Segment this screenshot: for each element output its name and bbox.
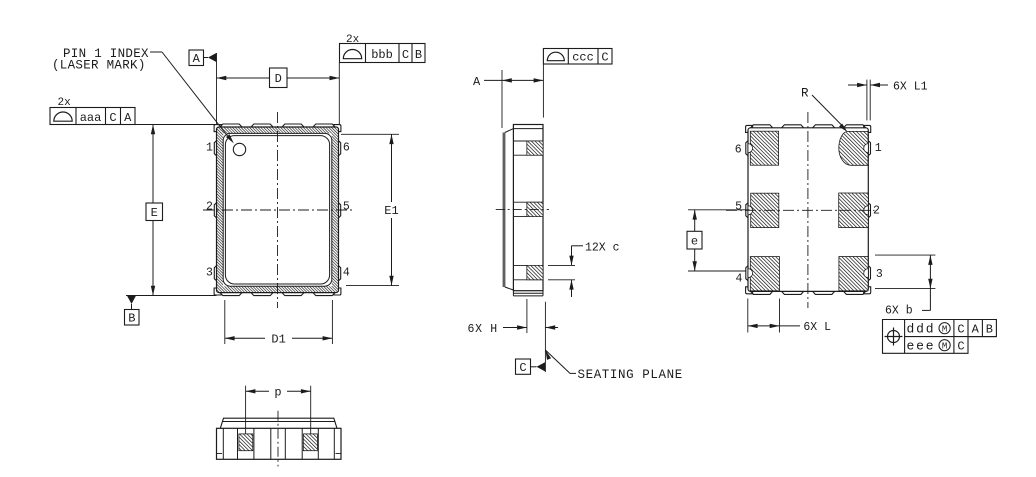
svg-text:2x: 2x	[346, 34, 360, 46]
svg-text:bbb: bbb	[371, 48, 393, 62]
svg-text:D1: D1	[271, 333, 285, 347]
svg-text:12X c: 12X c	[585, 241, 620, 254]
svg-text:5: 5	[343, 201, 350, 214]
svg-text:6: 6	[735, 144, 742, 157]
svg-text:A: A	[473, 75, 481, 89]
svg-text:2: 2	[206, 201, 213, 214]
svg-text:B: B	[415, 48, 422, 62]
svg-text:6X L1: 6X L1	[893, 81, 928, 94]
svg-text:6X L: 6X L	[803, 321, 831, 334]
svg-text:C: C	[957, 340, 964, 354]
svg-text:B: B	[986, 323, 993, 337]
svg-text:A: A	[193, 52, 201, 66]
svg-text:eee: eee	[907, 339, 936, 354]
svg-text:(LASER MARK): (LASER MARK)	[52, 59, 146, 73]
svg-text:p: p	[274, 386, 281, 400]
svg-text:ddd: ddd	[907, 322, 936, 337]
svg-text:6X b: 6X b	[885, 305, 913, 318]
svg-text:4: 4	[736, 272, 743, 285]
svg-text:M: M	[942, 325, 947, 335]
svg-text:SEATING PLANE: SEATING PLANE	[578, 368, 683, 382]
svg-text:6X H: 6X H	[468, 323, 498, 336]
svg-text:C: C	[402, 48, 409, 62]
svg-text:2: 2	[873, 205, 880, 218]
svg-text:3: 3	[206, 267, 213, 280]
svg-text:M: M	[942, 342, 947, 352]
svg-text:aaa: aaa	[80, 111, 102, 125]
svg-text:5: 5	[735, 200, 742, 213]
svg-text:E1: E1	[384, 204, 398, 218]
svg-text:C: C	[601, 51, 608, 65]
svg-text:3: 3	[876, 268, 883, 281]
svg-text:B: B	[128, 312, 135, 326]
svg-text:1: 1	[875, 142, 882, 155]
svg-text:4: 4	[343, 267, 350, 280]
svg-text:D: D	[275, 72, 282, 86]
svg-text:1: 1	[206, 142, 213, 155]
svg-text:C: C	[109, 111, 116, 125]
svg-text:e: e	[691, 235, 698, 249]
svg-text:A: A	[972, 323, 980, 337]
svg-text:C: C	[519, 361, 526, 375]
svg-text:6: 6	[343, 142, 350, 155]
svg-text:A: A	[124, 111, 132, 125]
svg-text:ccc: ccc	[572, 51, 594, 65]
svg-text:C: C	[957, 323, 964, 337]
svg-text:E: E	[151, 206, 158, 220]
svg-text:R: R	[801, 87, 809, 101]
